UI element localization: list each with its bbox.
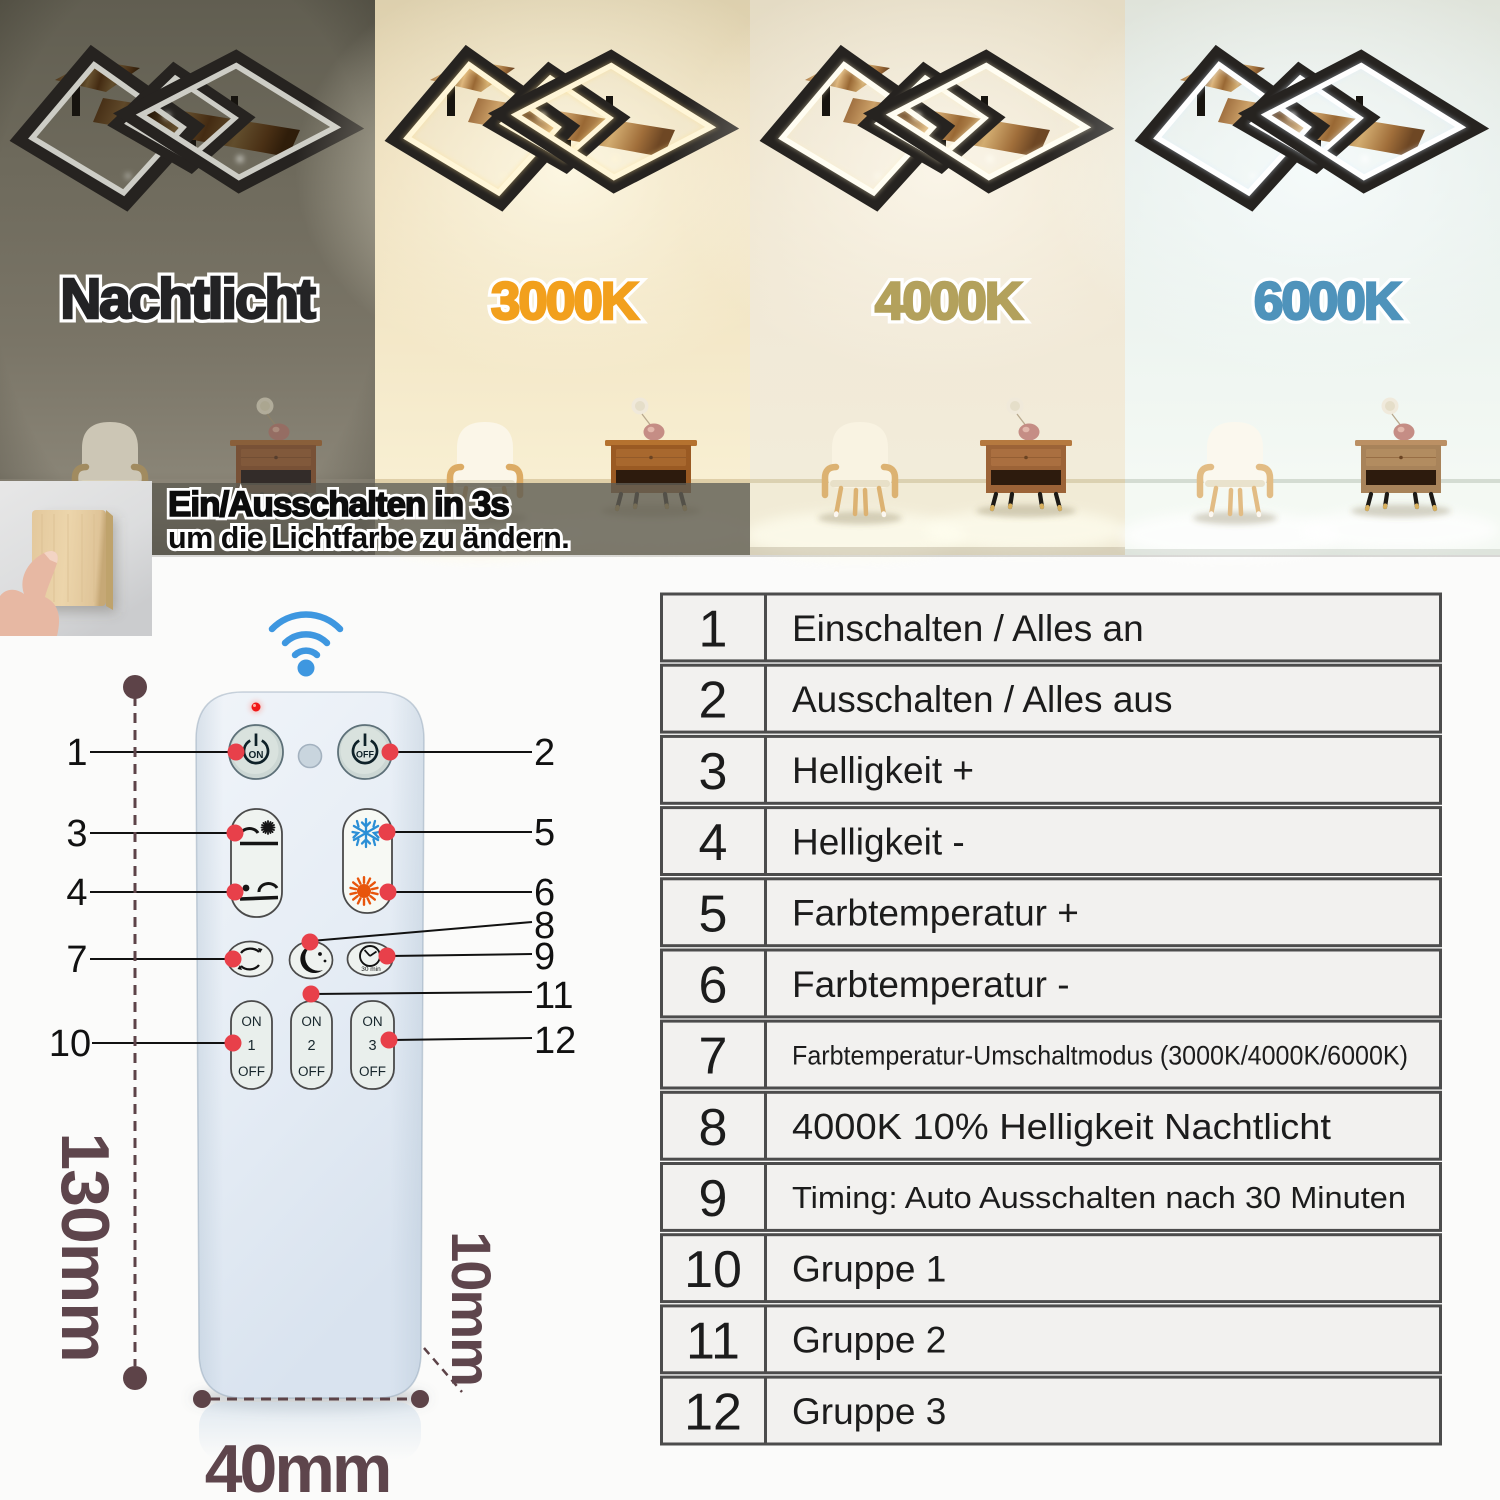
- svg-text:5: 5: [699, 885, 728, 943]
- svg-text:ON: ON: [362, 1014, 382, 1029]
- svg-text:Helligkeit +: Helligkeit +: [792, 750, 974, 791]
- svg-text:4: 4: [699, 814, 728, 872]
- svg-text:ON: ON: [241, 1014, 261, 1029]
- svg-text:Gruppe 3: Gruppe 3: [792, 1391, 946, 1432]
- svg-text:Farbtemperatur -: Farbtemperatur -: [792, 964, 1070, 1005]
- svg-text:Nachtlicht: Nachtlicht: [60, 267, 316, 331]
- svg-text:6000K: 6000K: [1254, 272, 1402, 331]
- svg-text:6: 6: [699, 957, 728, 1015]
- svg-text:4000K: 4000K: [875, 272, 1023, 331]
- svg-text:3000K: 3000K: [491, 272, 639, 331]
- svg-text:2: 2: [534, 732, 555, 774]
- svg-text:Gruppe 2: Gruppe 2: [792, 1320, 946, 1361]
- svg-text:Gruppe 1: Gruppe 1: [792, 1249, 946, 1290]
- svg-text:2: 2: [699, 672, 728, 730]
- svg-text:10: 10: [49, 1023, 91, 1065]
- svg-text:11: 11: [534, 975, 573, 1017]
- svg-text:9: 9: [534, 936, 555, 978]
- svg-text:Helligkeit -: Helligkeit -: [792, 821, 965, 862]
- svg-text:ON: ON: [301, 1014, 321, 1029]
- svg-text:1: 1: [66, 732, 87, 774]
- svg-text:OFF: OFF: [298, 1064, 325, 1079]
- svg-text:8: 8: [699, 1099, 728, 1157]
- svg-text:7: 7: [66, 939, 87, 981]
- svg-text:ON: ON: [249, 750, 264, 761]
- svg-text:Einschalten / Alles an: Einschalten / Alles an: [792, 608, 1144, 649]
- svg-text:2: 2: [307, 1038, 315, 1054]
- svg-text:3: 3: [699, 743, 728, 801]
- svg-text:OFF: OFF: [359, 1064, 386, 1079]
- svg-text:um die Lichtfarbe zu ändern.: um die Lichtfarbe zu ändern.: [168, 521, 569, 555]
- svg-text:1: 1: [247, 1038, 255, 1054]
- svg-text:9: 9: [699, 1170, 728, 1228]
- svg-text:12: 12: [534, 1020, 576, 1062]
- svg-text:40mm: 40mm: [205, 1431, 390, 1500]
- svg-text:7: 7: [699, 1028, 728, 1086]
- svg-text:Ein/Ausschalten in 3s: Ein/Ausschalten in 3s: [168, 485, 509, 524]
- svg-text:12: 12: [684, 1384, 742, 1442]
- svg-text:11: 11: [686, 1312, 740, 1370]
- svg-text:Farbtemperatur +: Farbtemperatur +: [792, 893, 1079, 934]
- svg-text:Timing: Auto Ausschalten nach: Timing: Auto Ausschalten nach 30 Minuten: [792, 1180, 1406, 1215]
- svg-text:10: 10: [684, 1241, 742, 1299]
- svg-text:OFF: OFF: [238, 1064, 265, 1079]
- svg-text:130mm: 130mm: [47, 1132, 123, 1361]
- svg-text:3: 3: [66, 813, 87, 855]
- svg-text:4000K 10% Helligkeit Nachtlich: 4000K 10% Helligkeit Nachtlicht: [792, 1106, 1331, 1147]
- svg-text:5: 5: [534, 812, 555, 854]
- svg-text:30 min: 30 min: [361, 966, 381, 973]
- svg-text:OFF: OFF: [356, 750, 374, 760]
- svg-text:10mm: 10mm: [440, 1231, 503, 1385]
- svg-text:Ausschalten / Alles aus: Ausschalten / Alles aus: [792, 679, 1173, 720]
- svg-text:4: 4: [66, 872, 87, 914]
- svg-text:Farbtemperatur-Umschaltmodus (: Farbtemperatur-Umschaltmodus (3000K/4000…: [792, 1040, 1408, 1070]
- svg-text:1: 1: [699, 601, 728, 659]
- svg-text:3: 3: [368, 1038, 376, 1054]
